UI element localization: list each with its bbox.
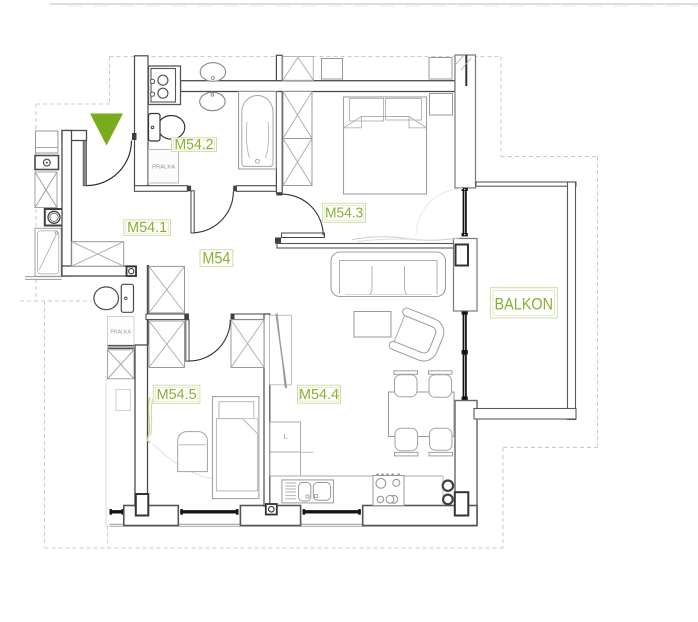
svg-text:M54.4: M54.4 bbox=[299, 386, 339, 403]
svg-text:M54.2: M54.2 bbox=[175, 136, 214, 153]
svg-text:BALKON: BALKON bbox=[495, 295, 554, 313]
svg-text:M54.3: M54.3 bbox=[325, 205, 363, 222]
svg-text:PRALKA: PRALKA bbox=[110, 330, 131, 336]
svg-text:L: L bbox=[284, 432, 288, 441]
svg-text:PRALKA: PRALKA bbox=[152, 164, 176, 170]
svg-text:M54: M54 bbox=[202, 248, 230, 267]
svg-text:M54.1: M54.1 bbox=[127, 219, 167, 236]
svg-text:M54.5: M54.5 bbox=[157, 386, 197, 403]
